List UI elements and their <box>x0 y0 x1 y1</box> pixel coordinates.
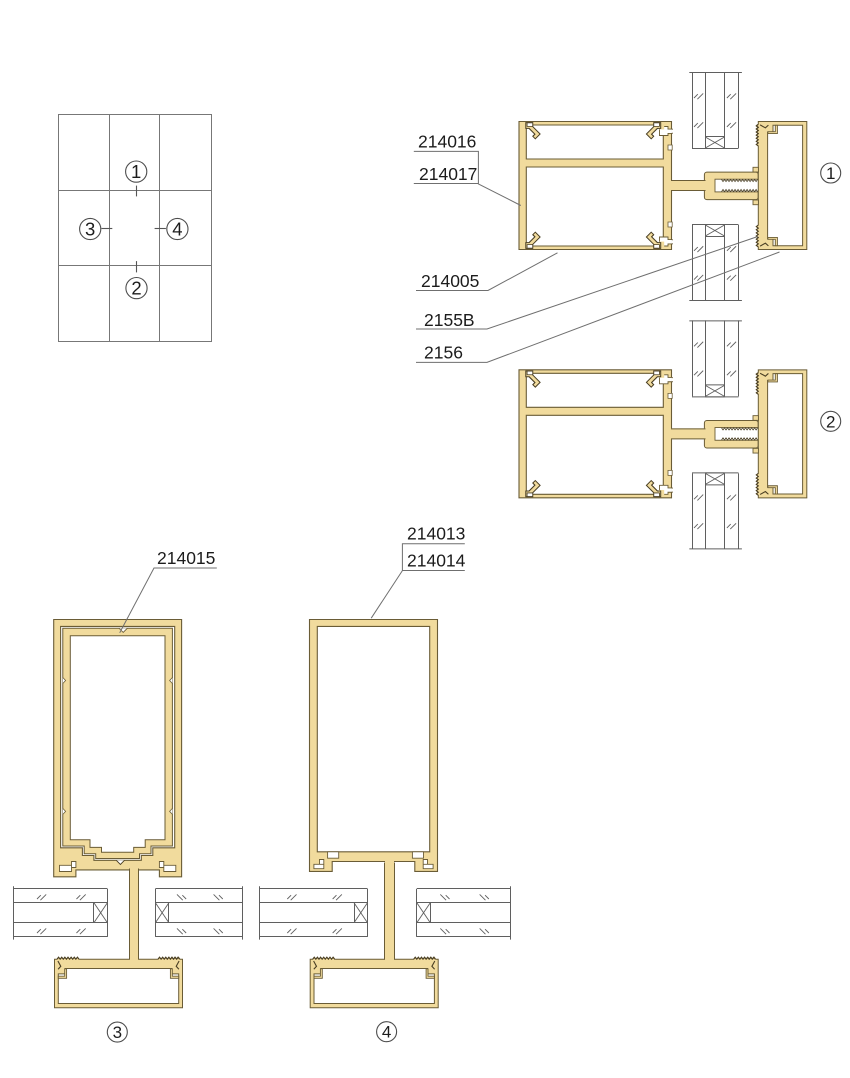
svg-text:214013: 214013 <box>407 524 465 544</box>
svg-text:1: 1 <box>131 161 141 182</box>
svg-text:2156: 2156 <box>424 343 463 363</box>
svg-text:3: 3 <box>85 219 95 240</box>
svg-text:2: 2 <box>131 278 141 299</box>
svg-text:214005: 214005 <box>421 271 479 291</box>
svg-text:3: 3 <box>113 1023 122 1042</box>
svg-text:1: 1 <box>826 164 835 183</box>
svg-text:214015: 214015 <box>157 548 215 568</box>
svg-text:2: 2 <box>826 412 835 431</box>
svg-text:2155B: 2155B <box>424 310 475 330</box>
svg-text:214016: 214016 <box>418 132 476 152</box>
svg-text:4: 4 <box>382 1023 391 1042</box>
svg-text:214017: 214017 <box>419 164 477 184</box>
svg-text:214014: 214014 <box>407 551 466 571</box>
svg-text:4: 4 <box>172 219 182 240</box>
